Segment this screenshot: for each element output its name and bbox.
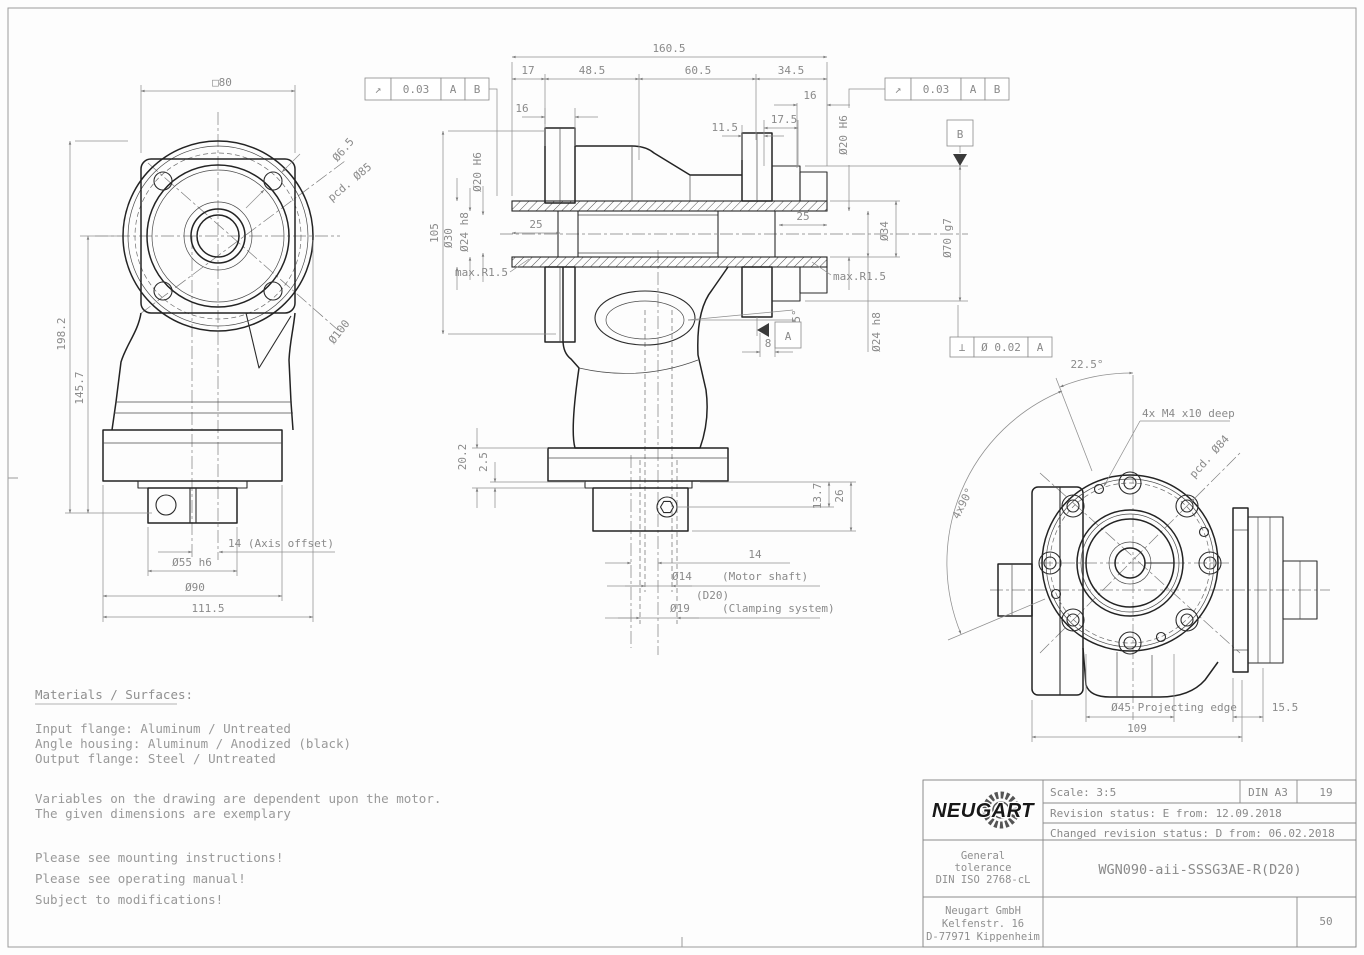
dim-105: 105 — [428, 223, 441, 243]
dim-11-5: 11.5 — [712, 121, 739, 134]
dim-projecting-edge: Ø45 Projecting edge — [1111, 701, 1237, 714]
fcf-right-datum1: A — [970, 83, 977, 96]
fcf-left-datum1: A — [450, 83, 457, 96]
dim-4x90deg: 4x90° — [950, 486, 977, 521]
dim-spigot55: Ø55 h6 — [172, 556, 212, 569]
dim-22-5deg: 22.5° — [1070, 358, 1103, 371]
dim-d70: Ø70 g7 — [941, 218, 954, 258]
tb-company-3: D-77971 Kippenheim — [926, 931, 1040, 943]
fcf-right-tol: 0.03 — [923, 83, 950, 96]
tb-tolerance-2: tolerance — [955, 862, 1012, 874]
dim-d30: Ø30 — [442, 228, 455, 248]
runout-icon: ↗ — [375, 83, 382, 96]
runout-icon: ↗ — [895, 83, 902, 96]
dim-160-5: 160.5 — [652, 42, 685, 55]
perpendicular-icon: ⊥ — [959, 341, 966, 354]
fcf-left-datum2: B — [474, 83, 481, 96]
dim-17: 17 — [521, 64, 534, 77]
datum-b-label: B — [957, 128, 964, 141]
dim-109: 109 — [1127, 722, 1147, 735]
fcf-right-datum2: B — [994, 83, 1001, 96]
dim-square80: □80 — [212, 76, 232, 89]
dim-198-2: 198.2 — [55, 317, 68, 350]
dim-maxr-left: max.R1.5 — [455, 266, 508, 279]
dim-60-5: 60.5 — [685, 64, 712, 77]
front-view: □80 198.2 145.7 Ø6.5 pcd. Ø85 Ø100 14 (A… — [55, 76, 374, 622]
dim-bore25-right: 25 — [796, 210, 809, 223]
perp-datum: A — [1037, 341, 1044, 354]
dim-d34: Ø34 — [878, 221, 891, 241]
note-input-flange: Input flange: Aluminum / Untreated — [35, 721, 291, 736]
fcf-left-tol: 0.03 — [403, 83, 430, 96]
dim-20-2: 20.2 — [456, 444, 469, 471]
dim-flange90: Ø90 — [185, 581, 205, 594]
dim-145-7: 145.7 — [73, 371, 86, 404]
perpendicularity-frame: ⊥ Ø 0.02 A — [950, 305, 1052, 357]
tb-tolerance-1: General — [961, 850, 1005, 862]
dim-clamp-d: Ø19 — [670, 602, 690, 615]
tb-code: 50 — [1319, 915, 1332, 928]
dim-14: 14 — [748, 548, 762, 561]
dim-d20-left: Ø20 H6 — [471, 152, 484, 192]
dim-pcd85: pcd. Ø85 — [325, 160, 374, 204]
technical-drawing: □80 198.2 145.7 Ø6.5 pcd. Ø85 Ø100 14 (A… — [0, 0, 1364, 955]
dim-axis-offset: 14 (Axis offset) — [228, 537, 334, 550]
fcf-right: ↗ 0.03 A B — [849, 78, 1009, 108]
tb-sheet: 19 — [1319, 786, 1332, 799]
datum-a-label: A — [785, 330, 792, 343]
dim-motor-label: (Motor shaft) — [722, 570, 808, 583]
dim-d20-right: Ø20 H6 — [837, 115, 850, 155]
dim-bolt-hole: Ø6.5 — [330, 135, 357, 164]
dim-m4-thread: 4x M4 x10 deep — [1142, 407, 1235, 420]
note-modifications: Subject to modifications! — [35, 892, 223, 907]
dim-d24-right: Ø24 h8 — [870, 312, 883, 352]
notes: Materials / Surfaces: Input flange: Alum… — [35, 687, 441, 907]
note-operating: Please see operating manual! — [35, 871, 246, 886]
dim-maxr-right: max.R1.5 — [833, 270, 886, 283]
tb-changed: Changed revision status: D from: 06.02.2… — [1050, 827, 1335, 840]
tb-scale: Scale: 3:5 — [1050, 786, 1116, 799]
dim-outer100: Ø100 — [326, 317, 353, 346]
side-view: 22.5° 4x90° 4x M4 x10 deep pcd. Ø84 Ø45 … — [947, 358, 1330, 742]
dim-pcd84: pcd. Ø84 — [1187, 432, 1232, 480]
dim-width111: 111.5 — [191, 602, 224, 615]
dim-angle5: 5° — [790, 309, 803, 322]
tb-format: DIN A3 — [1248, 786, 1288, 799]
dim-motor-note: (D20) — [696, 589, 729, 602]
dim-d24-left: Ø24 h8 — [458, 212, 471, 252]
datum-b: B — [947, 120, 973, 166]
dim-15-5: 15.5 — [1272, 701, 1299, 714]
dim-16-right: 16 — [803, 89, 816, 102]
title-block: NEUGART Scale: 3:5 DIN A3 19 Revision st… — [923, 780, 1356, 947]
section-view: ↗ 0.03 A B ↗ 0.03 A B 160.5 17 — [365, 42, 1052, 655]
dim-48-5: 48.5 — [579, 64, 606, 77]
dim-13-7: 13.7 — [811, 483, 824, 510]
note-mounting: Please see mounting instructions! — [35, 850, 283, 865]
dim-2-5: 2.5 — [477, 452, 490, 472]
dim-8: 8 — [765, 337, 772, 350]
perp-tol: Ø 0.02 — [981, 341, 1021, 354]
dim-bore25-left: 25 — [529, 218, 542, 231]
note-output-flange: Output flange: Steel / Untreated — [35, 751, 276, 766]
tb-tolerance-3: DIN ISO 2768-cL — [936, 874, 1031, 886]
tb-company-1: Neugart GmbH — [945, 905, 1021, 917]
tb-revision: Revision status: E from: 12.09.2018 — [1050, 807, 1282, 820]
note-angle-housing: Angle housing: Aluminum / Anodized (blac… — [35, 736, 351, 751]
tb-company-2: Kelfenstr. 16 — [942, 918, 1024, 930]
dim-26: 26 — [833, 489, 846, 502]
tb-part-number: WGN090-aii-SSSG3AE-R(D20) — [1098, 862, 1301, 878]
note-variables-2: The given dimensions are exemplary — [35, 806, 291, 821]
drawing-page: □80 198.2 145.7 Ø6.5 pcd. Ø85 Ø100 14 (A… — [0, 0, 1364, 955]
dim-17-5: 17.5 — [771, 113, 798, 126]
dim-16-left: 16 — [515, 102, 528, 115]
notes-heading: Materials / Surfaces: — [35, 687, 193, 702]
brand-text: NEUGART — [932, 800, 1035, 822]
dim-clamp-label: (Clamping system) — [722, 602, 835, 615]
dim-34-5: 34.5 — [778, 64, 805, 77]
dim-motor-d: Ø14 — [672, 570, 692, 583]
neugart-logo: NEUGART — [932, 795, 1035, 825]
note-variables-1: Variables on the drawing are dependent u… — [35, 791, 441, 806]
